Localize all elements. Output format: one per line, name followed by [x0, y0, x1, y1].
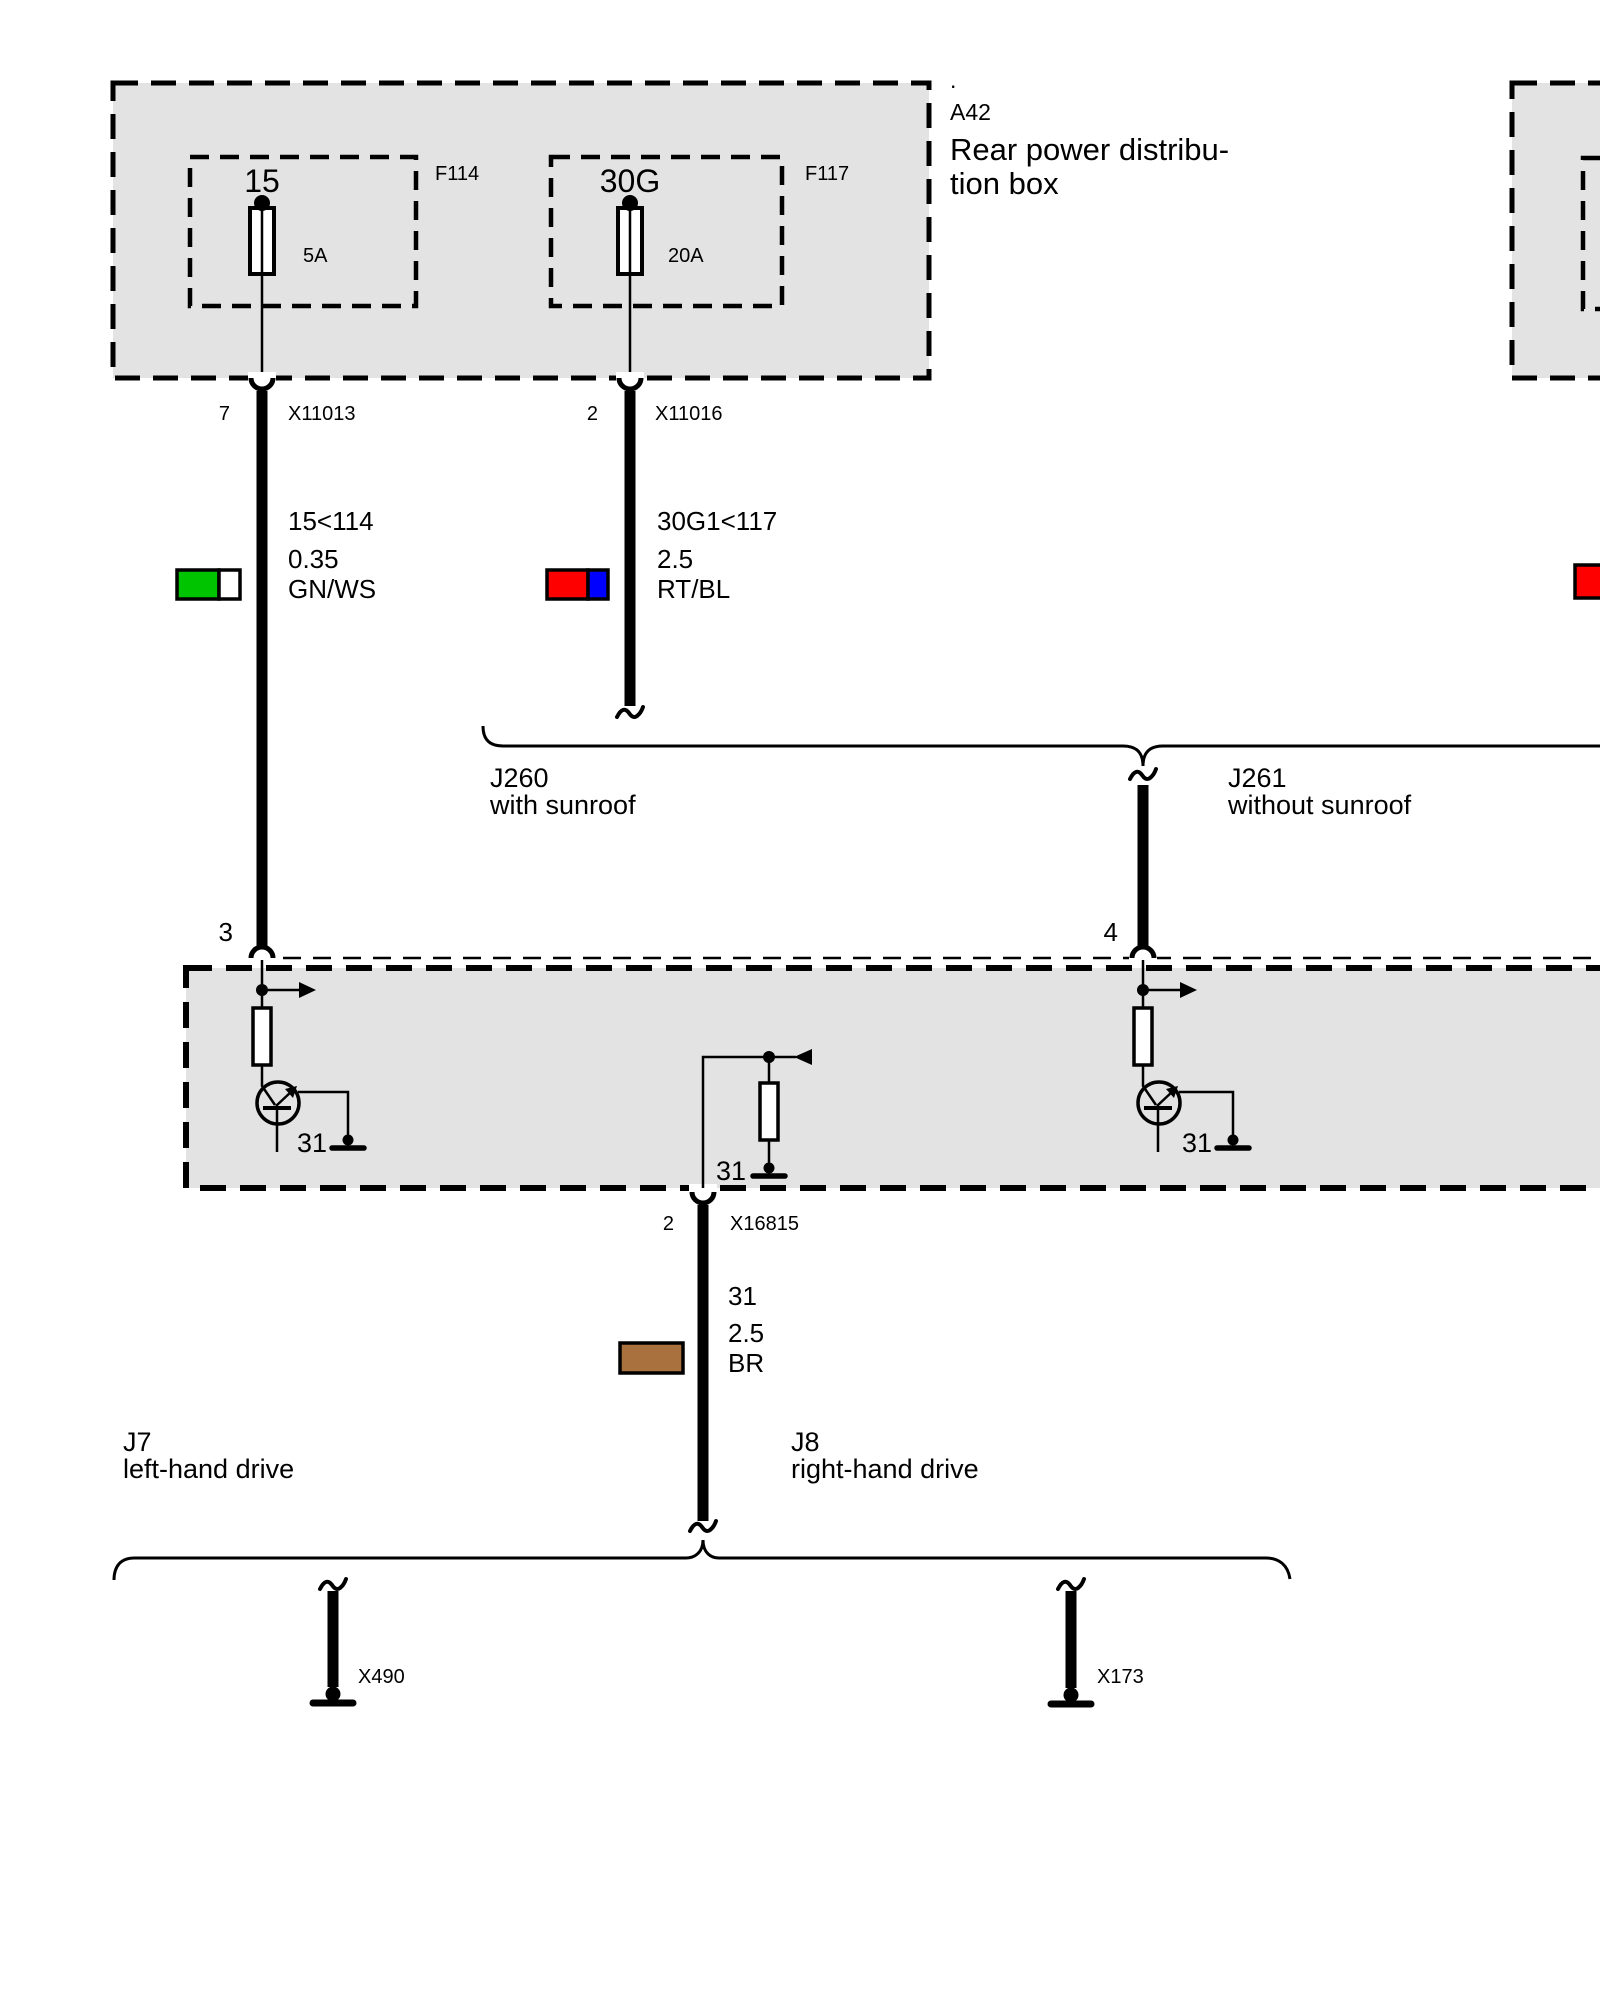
distribution-box-outline [113, 83, 929, 378]
wire-break-tilde-icon [320, 1579, 346, 1589]
control-module-box [186, 958, 1600, 1188]
option-j261-code: J261 [1228, 763, 1287, 793]
pin-number: 7 [219, 403, 230, 425]
wire-circuit: 15<114 [288, 506, 374, 536]
connector-code: X16815 [730, 1213, 799, 1235]
ground-x173: X173 [1051, 1579, 1144, 1704]
ground-dot [764, 1163, 775, 1174]
connector-code: X11016 [655, 403, 722, 425]
option-j8-code: J8 [791, 1427, 820, 1457]
wire-color-code: GN/WS [288, 574, 376, 604]
module-pin3: 3 [219, 917, 233, 947]
module-outline [186, 968, 1600, 1188]
wiring-diagram-page: 15 5A F114 30G 20A F117 . A42 Rear power… [0, 0, 1600, 2000]
wire-color-swatch-gnws [177, 570, 240, 599]
connector-x11013: 7 X11013 [219, 403, 356, 425]
wire-circuit: 31 [728, 1281, 757, 1311]
ground-dot [343, 1135, 354, 1146]
fuse-f114-name: 15 [244, 163, 280, 199]
wire-size: 2.5 [728, 1318, 764, 1348]
fuse-f114-code: F114 [435, 163, 479, 185]
module-pin4: 4 [1104, 917, 1118, 947]
swatch-green [177, 570, 219, 599]
wire-size: 2.5 [657, 544, 693, 574]
wire-size: 0.35 [288, 544, 339, 574]
connector-code: X11013 [288, 403, 355, 425]
wiring-diagram: 15 5A F114 30G 20A F117 . A42 Rear power… [0, 0, 1600, 2000]
ground-x490: X490 [313, 1579, 405, 1703]
wire-br-label: 31 2.5 BR [620, 1281, 764, 1378]
wire-color-swatch-rtbl [547, 570, 608, 599]
option-brace-top [483, 726, 1600, 766]
wire-color-swatch-right-edge [1575, 565, 1600, 598]
chassis-ground-dome [1064, 1688, 1079, 1703]
wire-break-tilde-icon [1058, 1579, 1084, 1589]
wire-break-tilde-icon [617, 707, 643, 717]
wire-color-code: RT/BL [657, 574, 730, 604]
resistor-symbol [760, 1083, 778, 1140]
option-j8-label: right-hand drive [791, 1454, 979, 1484]
chassis-ground-dome [326, 1687, 341, 1702]
fuse-terminal-dot [254, 195, 270, 211]
fuse-f117-code: F117 [805, 163, 849, 185]
option-j7-label: left-hand drive [123, 1454, 294, 1484]
swatch-red [547, 570, 588, 599]
wire-color-code: BR [728, 1348, 764, 1378]
fuse-f117-rating: 20A [668, 245, 704, 267]
pin-number: 2 [587, 403, 598, 425]
right-box-outline [1512, 83, 1600, 378]
option-brace-bottom [114, 1540, 1290, 1580]
box-title-line1: Rear power distribu- [950, 132, 1229, 167]
resistor-symbol [253, 1008, 271, 1065]
pin-number: 2 [663, 1213, 674, 1235]
box-code: A42 [950, 99, 991, 125]
wire-break-tilde-icon [1130, 769, 1156, 779]
connector-x16815: 2 X16815 [663, 1213, 799, 1235]
wire-gn-ws-label: 15<114 0.35 GN/WS [177, 506, 376, 604]
wire-break-tilde-icon [690, 1521, 716, 1531]
option-j261-label: without sunroof [1227, 790, 1412, 820]
option-j7-code: J7 [123, 1427, 152, 1457]
swatch-white [219, 570, 240, 599]
option-j260-code: J260 [490, 763, 549, 793]
resistor-symbol [1134, 1008, 1152, 1065]
sunroof-option-split: J260 with sunroof J261 without sunroof [483, 707, 1600, 820]
wire-color-swatch-br [620, 1343, 683, 1373]
swatch-blue [588, 570, 608, 599]
ground-dot [1228, 1135, 1239, 1146]
ground-code: X490 [358, 1666, 405, 1688]
box-title-line2: tion box [950, 166, 1059, 201]
ground-label: 31 [297, 1128, 327, 1158]
ground-label: 31 [716, 1156, 746, 1186]
fuse-f117-name: 30G [600, 163, 660, 199]
box-dot-label: . [950, 67, 956, 93]
wire-rt-bl-label: 30G1<117 2.5 RT/BL [547, 506, 777, 604]
connector-x11016: 2 X11016 [587, 403, 723, 425]
rear-power-distribution-box: 15 5A F114 30G 20A F117 . A42 Rear power… [113, 67, 1229, 378]
fuse-f114-rating: 5A [303, 245, 328, 267]
right-partial-box [1512, 83, 1600, 378]
ground-code: X173 [1097, 1666, 1144, 1688]
option-j260-label: with sunroof [489, 790, 636, 820]
fuse-terminal-dot [622, 195, 638, 211]
wire-circuit: 30G1<117 [657, 506, 777, 536]
ground-label: 31 [1182, 1128, 1212, 1158]
